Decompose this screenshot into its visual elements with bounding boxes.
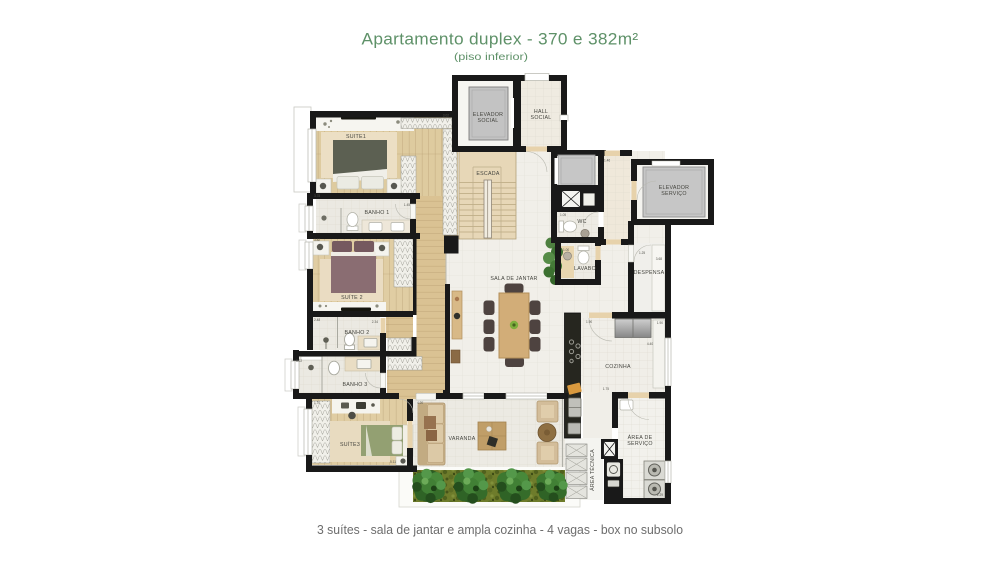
svg-text:COZINHA: COZINHA bbox=[605, 364, 631, 370]
svg-text:1.90: 1.90 bbox=[586, 320, 592, 324]
svg-text:WC: WC bbox=[577, 219, 586, 225]
svg-text:2.29: 2.29 bbox=[657, 493, 663, 497]
svg-text:1.00: 1.00 bbox=[563, 248, 569, 252]
svg-text:VARANDA: VARANDA bbox=[449, 436, 476, 442]
svg-text:SALA DE JANTAR: SALA DE JANTAR bbox=[490, 276, 537, 282]
svg-text:1.46: 1.46 bbox=[604, 159, 610, 163]
svg-text:3.22: 3.22 bbox=[296, 359, 302, 363]
svg-text:5.11: 5.11 bbox=[390, 460, 396, 464]
svg-text:BANHO 2: BANHO 2 bbox=[344, 330, 369, 336]
svg-text:1.25: 1.25 bbox=[639, 251, 645, 255]
svg-text:DESPENSA: DESPENSA bbox=[634, 270, 665, 276]
svg-text:1.05: 1.05 bbox=[560, 213, 566, 217]
svg-text:BANHO 1: BANHO 1 bbox=[364, 210, 389, 216]
svg-text:(piso inferior): (piso inferior) bbox=[454, 51, 528, 63]
svg-text:4.40: 4.40 bbox=[647, 342, 653, 346]
svg-text:LAVABO: LAVABO bbox=[574, 266, 596, 272]
svg-text:ÁREA DE: ÁREA DE bbox=[628, 434, 653, 441]
svg-text:ÁREA TÉCNICA: ÁREA TÉCNICA bbox=[589, 449, 596, 491]
svg-text:ESCADA: ESCADA bbox=[476, 171, 499, 177]
svg-text:1.75: 1.75 bbox=[603, 387, 609, 391]
svg-text:1.90: 1.90 bbox=[657, 321, 663, 325]
svg-text:3.78: 3.78 bbox=[314, 194, 320, 198]
svg-text:SOCIAL: SOCIAL bbox=[478, 118, 499, 124]
svg-text:2.48: 2.48 bbox=[314, 318, 320, 322]
svg-text:SERVIÇO: SERVIÇO bbox=[627, 441, 653, 447]
svg-text:Apartamento duplex - 370 e 382: Apartamento duplex - 370 e 382m² bbox=[362, 30, 639, 49]
svg-text:SUÍTE3: SUÍTE3 bbox=[340, 441, 360, 448]
svg-text:SOCIAL: SOCIAL bbox=[531, 115, 552, 121]
svg-text:1.70: 1.70 bbox=[314, 401, 320, 405]
svg-text:3.82: 3.82 bbox=[314, 238, 320, 242]
svg-text:3 suítes - sala de jantar e am: 3 suítes - sala de jantar e ampla cozinh… bbox=[317, 523, 683, 537]
svg-text:BANHO 3: BANHO 3 bbox=[342, 382, 367, 388]
svg-text:SERVIÇO: SERVIÇO bbox=[661, 191, 687, 197]
svg-text:3.68: 3.68 bbox=[656, 257, 662, 261]
svg-text:2.34: 2.34 bbox=[372, 320, 378, 324]
svg-text:SUITE1: SUITE1 bbox=[346, 134, 366, 140]
svg-text:4.20: 4.20 bbox=[417, 401, 423, 405]
svg-text:3.02: 3.02 bbox=[443, 114, 449, 118]
svg-text:1.45: 1.45 bbox=[404, 203, 410, 207]
svg-text:SUÍTE 2: SUÍTE 2 bbox=[341, 294, 363, 301]
